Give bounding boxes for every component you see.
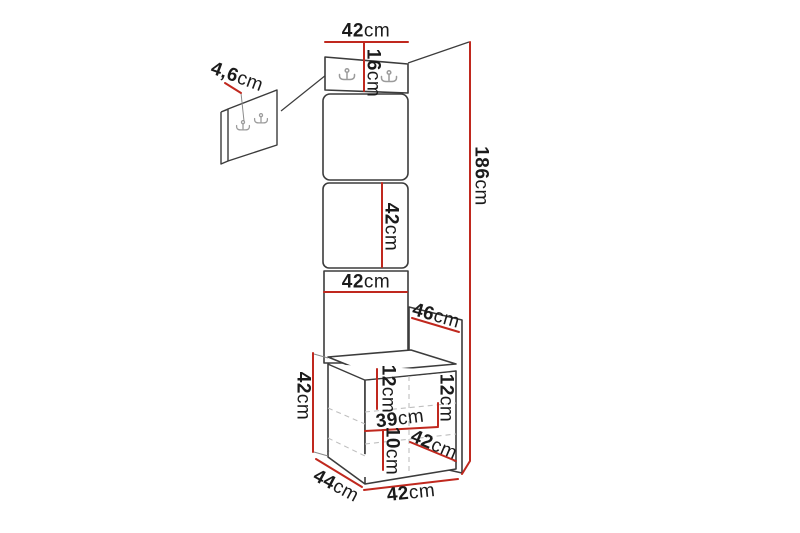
wall-hook-panel <box>221 90 277 164</box>
dim-unit: cm <box>364 272 390 293</box>
dim-value: 10 <box>382 427 403 449</box>
dim-value: 16 <box>363 49 384 71</box>
dim-label-bench-inner-bottom: 10cm <box>383 427 402 475</box>
dim-unit: cm <box>382 449 403 475</box>
dim-label-bench-inner-left: 12cm <box>379 365 398 413</box>
dim-unit: cm <box>364 21 390 42</box>
dim-unit: cm <box>471 179 492 205</box>
furniture-dimension-diagram: 42cm 16cm 4,6cm 186cm 42cm 42cm 46cm 42c… <box>0 0 800 533</box>
dim-value: 42 <box>342 21 364 42</box>
dim-label-bench-height: 42cm <box>294 372 313 420</box>
dim-unit: cm <box>436 396 457 422</box>
dim-label-bench-bottom-width: 42cm <box>386 481 436 505</box>
height-extension-line <box>408 42 469 63</box>
dim-unit: cm <box>408 480 436 504</box>
wall-panel-front-face <box>228 90 277 161</box>
dim-label-hook-panel-height: 16cm <box>364 49 383 97</box>
dim-line-total-height <box>462 42 470 474</box>
dim-label-top-width: 42cm <box>342 22 390 41</box>
dim-value: 12 <box>436 374 457 396</box>
dim-label-total-height: 186cm <box>472 146 491 206</box>
dim-value: 42 <box>293 372 314 394</box>
bench-height-extension <box>314 354 328 456</box>
dim-value: 42 <box>381 203 402 225</box>
dim-label-cushion-height: 42cm <box>382 203 401 251</box>
dim-unit: cm <box>363 71 384 97</box>
dim-label-bench-inner-right: 12cm <box>437 374 456 422</box>
dim-unit: cm <box>293 394 314 420</box>
dim-value: 42 <box>342 272 364 293</box>
dim-value: 186 <box>471 146 492 179</box>
dim-value: 12 <box>378 365 399 387</box>
dim-unit: cm <box>381 225 402 251</box>
dim-label-panel-width: 42cm <box>342 273 390 292</box>
upholstered-cushion-1 <box>323 94 408 180</box>
dim-value: 42 <box>386 483 410 506</box>
